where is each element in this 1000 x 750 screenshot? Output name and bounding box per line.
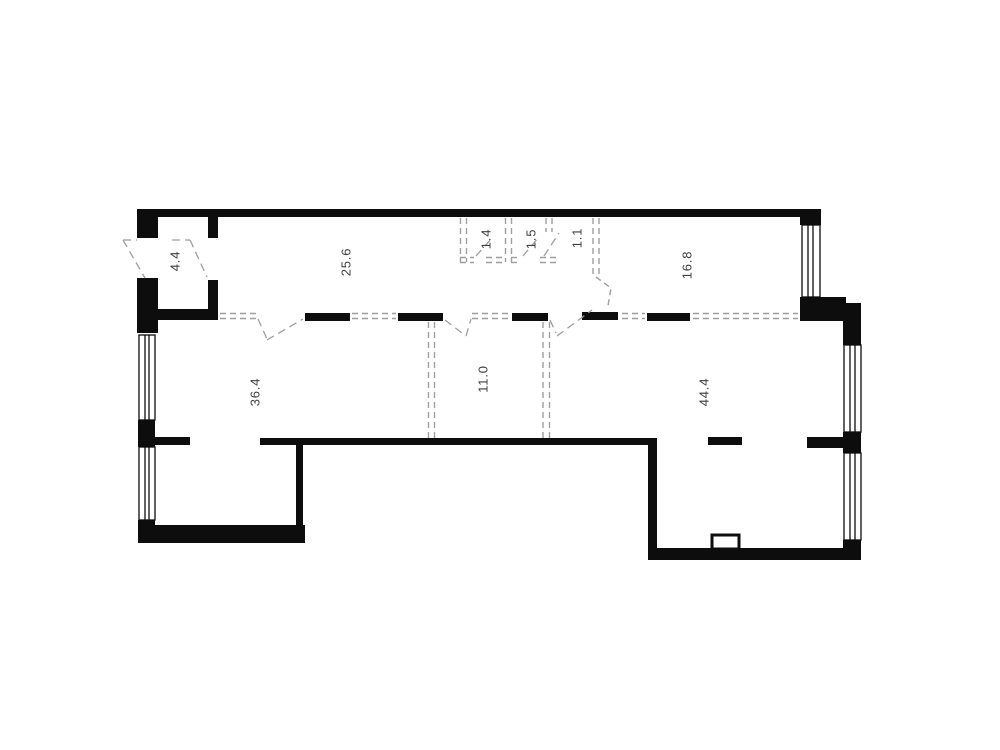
wall-segment-stub-room-e-a — [708, 437, 742, 445]
wall-segment-hall-bottom — [155, 309, 218, 320]
room-label-44-4: 44.4 — [696, 378, 711, 407]
window — [844, 453, 861, 540]
wall-segment-right-pier — [843, 432, 861, 453]
wall-segment-step-left-vertical — [296, 438, 303, 543]
window — [844, 345, 861, 432]
room-label-1-1: 1.1 — [569, 228, 584, 248]
wall-segment-top — [137, 209, 821, 217]
wall-segment-stub-left — [153, 437, 190, 445]
wall-segment-left-pier-mid — [138, 420, 155, 447]
wall-segment-mid-d — [582, 312, 618, 320]
wall-segment-top-right-corner — [800, 209, 821, 225]
wall-segment-bottom-right — [648, 548, 861, 560]
room-label-4-4: 4.4 — [167, 251, 182, 271]
floor-plan-page: 4.4 25.6 1.4 1.5 1.1 16.8 36.4 11.0 44.4 — [0, 0, 1000, 750]
wall-segment-step-right-vertical — [648, 438, 657, 560]
wall-segment-mid-b — [398, 313, 443, 321]
wall-segment-mid-a — [305, 313, 350, 321]
wall-segment-mid-c — [512, 313, 548, 321]
floor-plan-canvas: 4.4 25.6 1.4 1.5 1.1 16.8 36.4 11.0 44.4 — [0, 0, 1000, 750]
room-label-11-0: 11.0 — [475, 365, 490, 393]
wall-segment-mid-e — [647, 313, 690, 321]
window — [139, 447, 155, 520]
window — [139, 335, 155, 420]
wall-segment-bottom-right-corner — [843, 540, 861, 560]
window — [802, 225, 820, 297]
wall-segment-left-pier-upper — [137, 278, 158, 333]
wall-segment-right-step-horizontal — [800, 297, 846, 321]
room-label-1-4: 1.4 — [478, 229, 493, 249]
room-label-16-8: 16.8 — [679, 251, 694, 280]
wall-segment-stub-room-e-b — [807, 437, 844, 448]
room-label-1-5: 1.5 — [523, 229, 538, 249]
wall-segment-bottom-left — [138, 525, 305, 543]
wall-segment-right-step-vertical — [843, 303, 861, 345]
wall-segment-top-left-corner — [137, 209, 158, 238]
room-label-25-6: 25.6 — [338, 248, 353, 277]
wall-niche — [712, 535, 739, 549]
wall-segment-hall-jamb — [208, 217, 218, 238]
room-label-36-4: 36.4 — [247, 378, 262, 407]
wall-segment-middle-bottom — [260, 438, 655, 445]
